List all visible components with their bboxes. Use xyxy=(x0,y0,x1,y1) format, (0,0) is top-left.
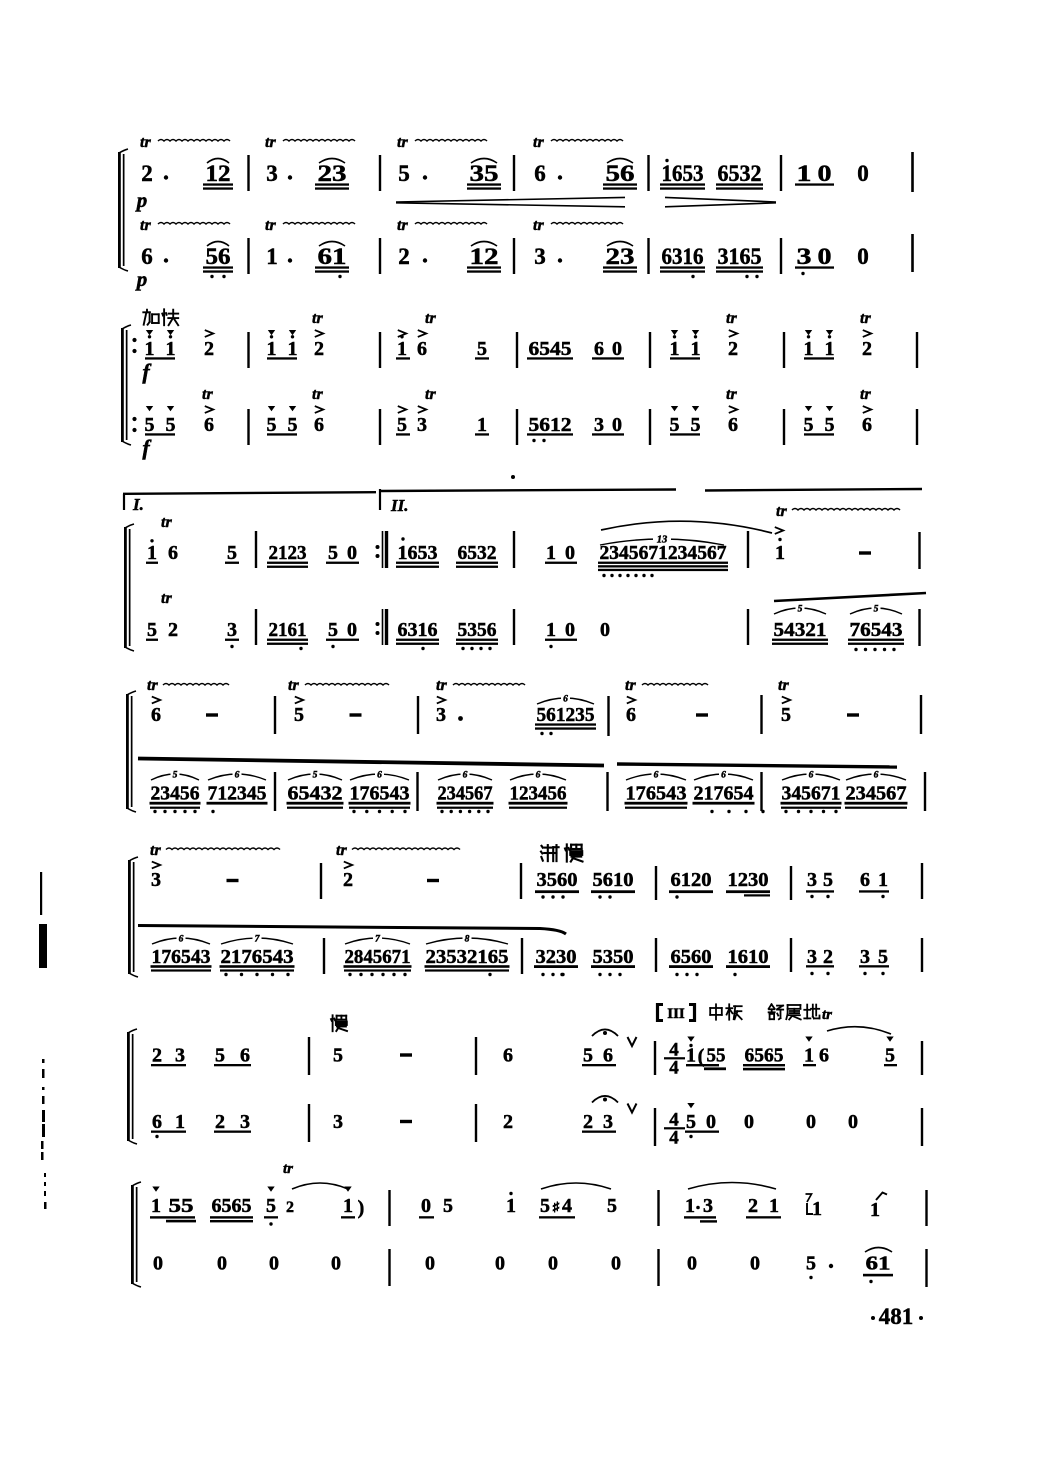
svg-text:5: 5 xyxy=(823,869,833,891)
svg-text:6: 6 xyxy=(168,542,178,564)
svg-text:1: 1 xyxy=(145,338,155,360)
svg-text:2: 2 xyxy=(314,338,324,360)
svg-text:tr: tr xyxy=(161,514,172,531)
svg-text:0: 0 xyxy=(818,161,832,186)
svg-text:5: 5 xyxy=(804,414,814,436)
svg-text:6: 6 xyxy=(860,869,870,891)
svg-text:tr: tr xyxy=(533,217,544,234)
svg-text:2: 2 xyxy=(215,1111,225,1133)
svg-text:23532165: 23532165 xyxy=(426,946,509,968)
svg-text:5: 5 xyxy=(825,414,835,436)
svg-text:6: 6 xyxy=(862,414,872,436)
svg-text:4: 4 xyxy=(669,1128,679,1149)
svg-text:0: 0 xyxy=(818,244,832,269)
svg-text:6: 6 xyxy=(179,935,184,945)
svg-text:1: 1 xyxy=(804,1045,814,1067)
svg-text:6: 6 xyxy=(417,338,427,360)
svg-text:tr: tr xyxy=(860,386,871,403)
svg-text:5: 5 xyxy=(328,542,338,564)
svg-text:6316: 6316 xyxy=(662,244,704,269)
svg-text:tr: tr xyxy=(336,842,347,859)
svg-text:55: 55 xyxy=(169,1195,194,1217)
svg-text:3: 3 xyxy=(797,244,812,269)
svg-text:1: 1 xyxy=(267,338,277,360)
svg-text:3: 3 xyxy=(703,1195,713,1217)
svg-text:5: 5 xyxy=(328,619,338,641)
svg-text:6: 6 xyxy=(563,695,568,705)
svg-text:4: 4 xyxy=(562,1195,572,1217)
svg-text:1: 1 xyxy=(769,1195,779,1217)
svg-text:6316: 6316 xyxy=(398,619,438,641)
svg-text:1: 1 xyxy=(266,244,278,269)
svg-text:2176543: 2176543 xyxy=(221,946,294,968)
svg-text:II.: II. xyxy=(390,496,408,515)
svg-text:6: 6 xyxy=(151,704,161,726)
svg-text:6: 6 xyxy=(809,771,814,781)
svg-text:1: 1 xyxy=(343,1195,353,1217)
svg-text:2: 2 xyxy=(152,1045,162,1067)
svg-text:2: 2 xyxy=(398,244,410,269)
svg-text:6: 6 xyxy=(819,1045,829,1067)
svg-text:6: 6 xyxy=(240,1045,250,1067)
svg-text:2: 2 xyxy=(141,161,153,186)
svg-text:5: 5 xyxy=(227,542,237,564)
svg-text:2: 2 xyxy=(204,338,214,360)
svg-text:1: 1 xyxy=(812,1198,822,1220)
svg-text:12: 12 xyxy=(470,244,499,269)
svg-text:6532: 6532 xyxy=(458,542,497,564)
svg-text:tr: tr xyxy=(425,386,436,403)
svg-text:0: 0 xyxy=(612,414,622,436)
svg-text:1230: 1230 xyxy=(728,869,769,891)
svg-text:1: 1 xyxy=(506,1195,516,1217)
svg-text:2: 2 xyxy=(168,619,178,641)
svg-text:tr: tr xyxy=(202,386,213,403)
svg-text:23456: 23456 xyxy=(151,783,200,805)
svg-text:0: 0 xyxy=(857,161,869,186)
svg-text:3: 3 xyxy=(807,869,817,891)
svg-text:176543: 176543 xyxy=(350,783,410,805)
svg-text:1: 1 xyxy=(691,338,701,360)
svg-text:5: 5 xyxy=(806,1253,816,1275)
svg-text:tr: tr xyxy=(822,1007,832,1023)
svg-text:1: 1 xyxy=(147,542,157,564)
svg-text:6565: 6565 xyxy=(745,1045,784,1067)
svg-text:1653: 1653 xyxy=(662,161,704,186)
svg-text:0: 0 xyxy=(347,542,357,564)
svg-text:3: 3 xyxy=(227,619,237,641)
svg-text:5: 5 xyxy=(885,1045,895,1067)
svg-text:6560: 6560 xyxy=(671,946,712,968)
svg-text:tr: tr xyxy=(397,217,408,234)
svg-text:tr: tr xyxy=(425,310,436,327)
svg-text:p: p xyxy=(135,267,148,291)
svg-text:0: 0 xyxy=(806,1111,816,1133)
svg-text:♯: ♯ xyxy=(552,1199,560,1214)
svg-text:0: 0 xyxy=(269,1253,279,1275)
svg-text:35: 35 xyxy=(470,161,499,186)
svg-text:0: 0 xyxy=(421,1195,431,1217)
svg-text:561235: 561235 xyxy=(537,704,595,726)
svg-text:1: 1 xyxy=(151,1195,161,1217)
svg-text:6120: 6120 xyxy=(671,869,712,891)
svg-text:1: 1 xyxy=(686,1045,696,1067)
svg-text:3: 3 xyxy=(534,244,546,269)
svg-text:3: 3 xyxy=(266,161,278,186)
svg-text:23: 23 xyxy=(606,244,635,269)
svg-text:tr: tr xyxy=(283,1161,293,1177)
svg-text:217654: 217654 xyxy=(694,783,754,805)
svg-text:5: 5 xyxy=(686,1111,696,1133)
svg-text:tr: tr xyxy=(533,134,544,151)
svg-text:p: p xyxy=(135,188,148,212)
svg-text:3: 3 xyxy=(151,869,161,891)
svg-text:5350: 5350 xyxy=(593,946,634,968)
svg-text:5: 5 xyxy=(781,704,791,726)
svg-text:234567: 234567 xyxy=(438,783,493,805)
svg-text:0: 0 xyxy=(217,1253,227,1275)
svg-text:5: 5 xyxy=(397,414,407,436)
svg-text:0: 0 xyxy=(565,619,575,641)
svg-text:0: 0 xyxy=(347,619,357,641)
svg-text:I.: I. xyxy=(132,495,144,514)
svg-text:6: 6 xyxy=(594,338,604,360)
svg-text:5: 5 xyxy=(540,1195,550,1217)
svg-text:5: 5 xyxy=(398,161,410,186)
svg-text:5: 5 xyxy=(874,605,879,615)
svg-text:6: 6 xyxy=(314,414,324,436)
svg-text:1: 1 xyxy=(546,619,556,641)
svg-text:712345: 712345 xyxy=(208,783,267,805)
svg-text:0: 0 xyxy=(331,1253,341,1275)
svg-text:): ) xyxy=(358,1197,365,1219)
svg-text:76543: 76543 xyxy=(850,619,903,641)
svg-text:tr: tr xyxy=(288,677,299,694)
svg-text:2: 2 xyxy=(503,1111,513,1133)
svg-text:56: 56 xyxy=(606,161,635,186)
svg-text:54321: 54321 xyxy=(774,619,827,641)
svg-text:6: 6 xyxy=(152,1111,162,1133)
svg-text:0: 0 xyxy=(425,1253,435,1275)
svg-text:1: 1 xyxy=(670,338,680,360)
svg-text:2: 2 xyxy=(286,1199,294,1216)
svg-text:5: 5 xyxy=(145,414,155,436)
svg-text:2: 2 xyxy=(748,1195,758,1217)
svg-text:6: 6 xyxy=(721,771,726,781)
svg-text:1: 1 xyxy=(477,414,487,436)
svg-text:3: 3 xyxy=(333,1111,343,1133)
svg-text:2: 2 xyxy=(728,338,738,360)
svg-text:5: 5 xyxy=(266,1195,276,1217)
svg-text:6: 6 xyxy=(377,771,382,781)
svg-text:6565: 6565 xyxy=(212,1195,252,1217)
svg-text:tr: tr xyxy=(436,677,447,694)
svg-text:1: 1 xyxy=(166,338,176,360)
svg-text:5: 5 xyxy=(294,704,304,726)
svg-text:5610: 5610 xyxy=(593,869,634,891)
svg-text:2: 2 xyxy=(862,338,872,360)
svg-text:tr: tr xyxy=(147,677,158,694)
svg-text:tr: tr xyxy=(161,590,172,607)
svg-text:3: 3 xyxy=(594,414,604,436)
svg-text:2845671: 2845671 xyxy=(345,946,411,968)
svg-text:1: 1 xyxy=(685,1195,695,1217)
svg-text:55: 55 xyxy=(707,1045,726,1067)
svg-text:tr: tr xyxy=(140,134,151,151)
svg-text:tr: tr xyxy=(778,677,789,694)
svg-text:5: 5 xyxy=(215,1045,225,1067)
svg-text:176543: 176543 xyxy=(626,783,687,805)
svg-text:6545: 6545 xyxy=(529,338,572,360)
svg-text:6: 6 xyxy=(503,1045,513,1067)
svg-text:8: 8 xyxy=(465,935,470,945)
svg-text:6: 6 xyxy=(728,414,738,436)
svg-text:0: 0 xyxy=(612,338,622,360)
svg-text:0: 0 xyxy=(750,1253,760,1275)
svg-text:4: 4 xyxy=(669,1058,679,1079)
svg-text:tr: tr xyxy=(150,842,161,859)
svg-text:12: 12 xyxy=(206,161,231,186)
svg-text:tr: tr xyxy=(265,134,276,151)
svg-text:2123: 2123 xyxy=(269,542,307,564)
svg-text:0: 0 xyxy=(848,1111,858,1133)
svg-text:0: 0 xyxy=(857,244,869,269)
svg-text:1: 1 xyxy=(825,338,835,360)
svg-text:13: 13 xyxy=(657,535,668,546)
svg-text:6: 6 xyxy=(654,771,659,781)
svg-text:1: 1 xyxy=(775,542,785,564)
svg-text:3230: 3230 xyxy=(536,946,577,968)
svg-text:0: 0 xyxy=(744,1111,754,1133)
svg-text:1653: 1653 xyxy=(398,542,438,564)
svg-text:tr: tr xyxy=(397,134,408,151)
svg-text:6: 6 xyxy=(141,244,153,269)
svg-text:0: 0 xyxy=(153,1253,163,1275)
svg-text:2: 2 xyxy=(343,869,353,891)
svg-text:3: 3 xyxy=(860,946,870,968)
svg-text:tr: tr xyxy=(312,310,323,327)
svg-text:1: 1 xyxy=(797,161,812,186)
svg-text:5: 5 xyxy=(173,771,178,781)
svg-text:6: 6 xyxy=(626,704,636,726)
svg-text:6: 6 xyxy=(874,771,879,781)
svg-text:5: 5 xyxy=(477,338,487,360)
svg-text:5: 5 xyxy=(878,946,888,968)
svg-text:6: 6 xyxy=(534,161,546,186)
svg-text:0: 0 xyxy=(565,542,575,564)
svg-text:1610: 1610 xyxy=(728,946,769,968)
svg-text:tr: tr xyxy=(726,310,737,327)
svg-text:3: 3 xyxy=(436,704,446,726)
svg-text:5: 5 xyxy=(267,414,277,436)
svg-text:5: 5 xyxy=(333,1045,343,1067)
svg-text:61: 61 xyxy=(318,244,347,269)
svg-text:345671: 345671 xyxy=(782,783,841,805)
svg-text:1: 1 xyxy=(288,338,298,360)
svg-text:0: 0 xyxy=(687,1253,697,1275)
svg-text:1: 1 xyxy=(804,338,814,360)
svg-text:61: 61 xyxy=(866,1253,891,1275)
svg-text:2: 2 xyxy=(823,946,833,968)
svg-text:0: 0 xyxy=(495,1253,505,1275)
svg-text:1: 1 xyxy=(175,1111,185,1133)
svg-text:5: 5 xyxy=(313,771,318,781)
svg-text:tr: tr xyxy=(140,217,151,234)
svg-text:3: 3 xyxy=(417,414,427,436)
svg-text:6532: 6532 xyxy=(718,161,762,186)
svg-text:0: 0 xyxy=(548,1253,558,1275)
svg-text:5: 5 xyxy=(166,414,176,436)
svg-text:1: 1 xyxy=(546,542,556,564)
svg-text:6: 6 xyxy=(603,1045,613,1067)
svg-text:5: 5 xyxy=(691,414,701,436)
svg-text:23: 23 xyxy=(318,161,347,186)
svg-text:1: 1 xyxy=(878,869,888,891)
svg-text:tr: tr xyxy=(312,386,323,403)
svg-text:5: 5 xyxy=(798,605,803,615)
svg-text:5: 5 xyxy=(147,619,157,641)
svg-text:5: 5 xyxy=(288,414,298,436)
svg-text:tr: tr xyxy=(776,503,787,520)
svg-text:3: 3 xyxy=(807,946,817,968)
svg-text:tr: tr xyxy=(860,310,871,327)
svg-text:234567: 234567 xyxy=(846,783,907,805)
svg-text:2: 2 xyxy=(583,1111,593,1133)
svg-text:3: 3 xyxy=(603,1111,613,1133)
svg-text:tr: tr xyxy=(625,677,636,694)
svg-text:1: 1 xyxy=(397,338,407,360)
svg-text:6: 6 xyxy=(463,771,468,781)
svg-text:1: 1 xyxy=(870,1199,880,1221)
svg-text:481: 481 xyxy=(879,1304,914,1329)
svg-text:6: 6 xyxy=(204,414,214,436)
svg-text:5: 5 xyxy=(670,414,680,436)
svg-text:2161: 2161 xyxy=(269,619,307,641)
svg-text:5: 5 xyxy=(607,1195,617,1217)
svg-text:III: III xyxy=(667,1006,685,1022)
svg-text:3560: 3560 xyxy=(537,869,578,891)
svg-text:6: 6 xyxy=(536,771,541,781)
svg-text:5356: 5356 xyxy=(458,619,497,641)
svg-text:5: 5 xyxy=(583,1045,593,1067)
svg-text:3: 3 xyxy=(175,1045,185,1067)
svg-text:56: 56 xyxy=(206,244,231,269)
svg-text:0: 0 xyxy=(706,1111,716,1133)
svg-text:0: 0 xyxy=(611,1253,621,1275)
svg-text:3165: 3165 xyxy=(718,244,762,269)
svg-text:tr: tr xyxy=(265,217,276,234)
svg-text:6: 6 xyxy=(235,771,240,781)
svg-text:123456: 123456 xyxy=(510,783,567,805)
svg-text:176543: 176543 xyxy=(152,946,211,968)
svg-text:tr: tr xyxy=(726,386,737,403)
svg-text:5612: 5612 xyxy=(529,414,572,436)
svg-text:5: 5 xyxy=(443,1195,453,1217)
svg-text:3: 3 xyxy=(240,1111,250,1133)
svg-text:65432: 65432 xyxy=(288,783,343,805)
svg-text:0: 0 xyxy=(600,619,610,641)
